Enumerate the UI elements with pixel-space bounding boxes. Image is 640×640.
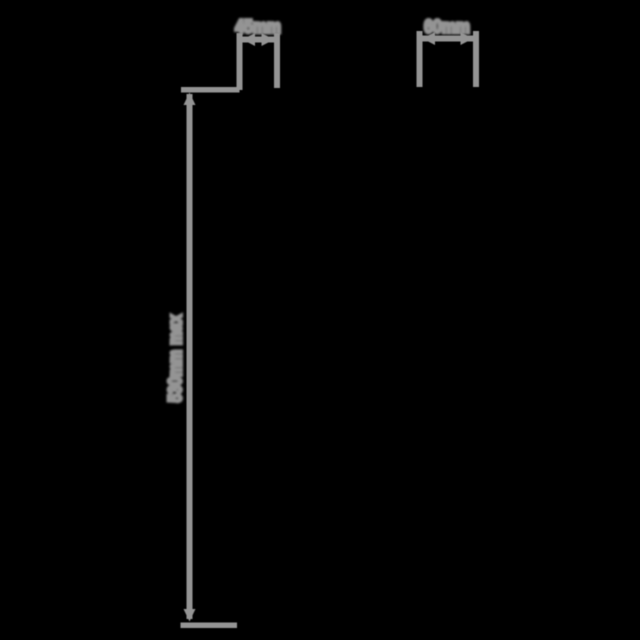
svg-text:60mm: 60mm	[424, 17, 470, 38]
svg-text:530mm max: 530mm max	[166, 314, 187, 402]
svg-text:45mm: 45mm	[235, 17, 281, 38]
